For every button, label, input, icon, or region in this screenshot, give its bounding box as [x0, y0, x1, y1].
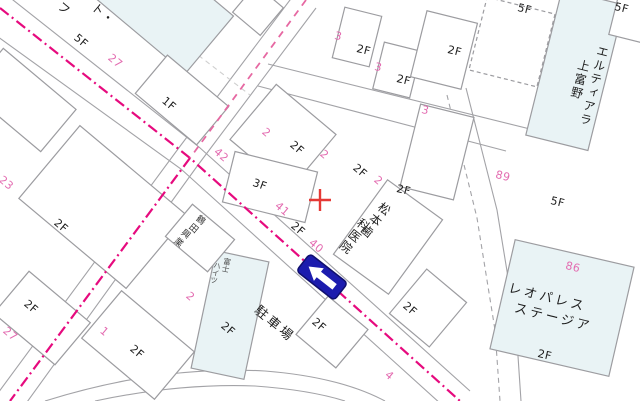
building-highlighted	[490, 240, 634, 377]
building	[332, 7, 381, 67]
building	[0, 271, 90, 365]
building	[389, 269, 466, 347]
building	[411, 11, 478, 90]
building	[82, 291, 195, 400]
building	[0, 48, 76, 151]
building	[233, 0, 284, 35]
map-base-layer	[0, 0, 640, 401]
one-way-sign	[296, 254, 347, 301]
road-edge	[95, 386, 345, 401]
building-highlighted	[191, 251, 269, 380]
building	[296, 296, 368, 368]
building	[400, 104, 474, 200]
map-canvas[interactable]: 27234241402223332271898645F1F2F2F2F2F2F2…	[0, 0, 640, 401]
building	[135, 55, 228, 145]
building	[19, 126, 187, 289]
